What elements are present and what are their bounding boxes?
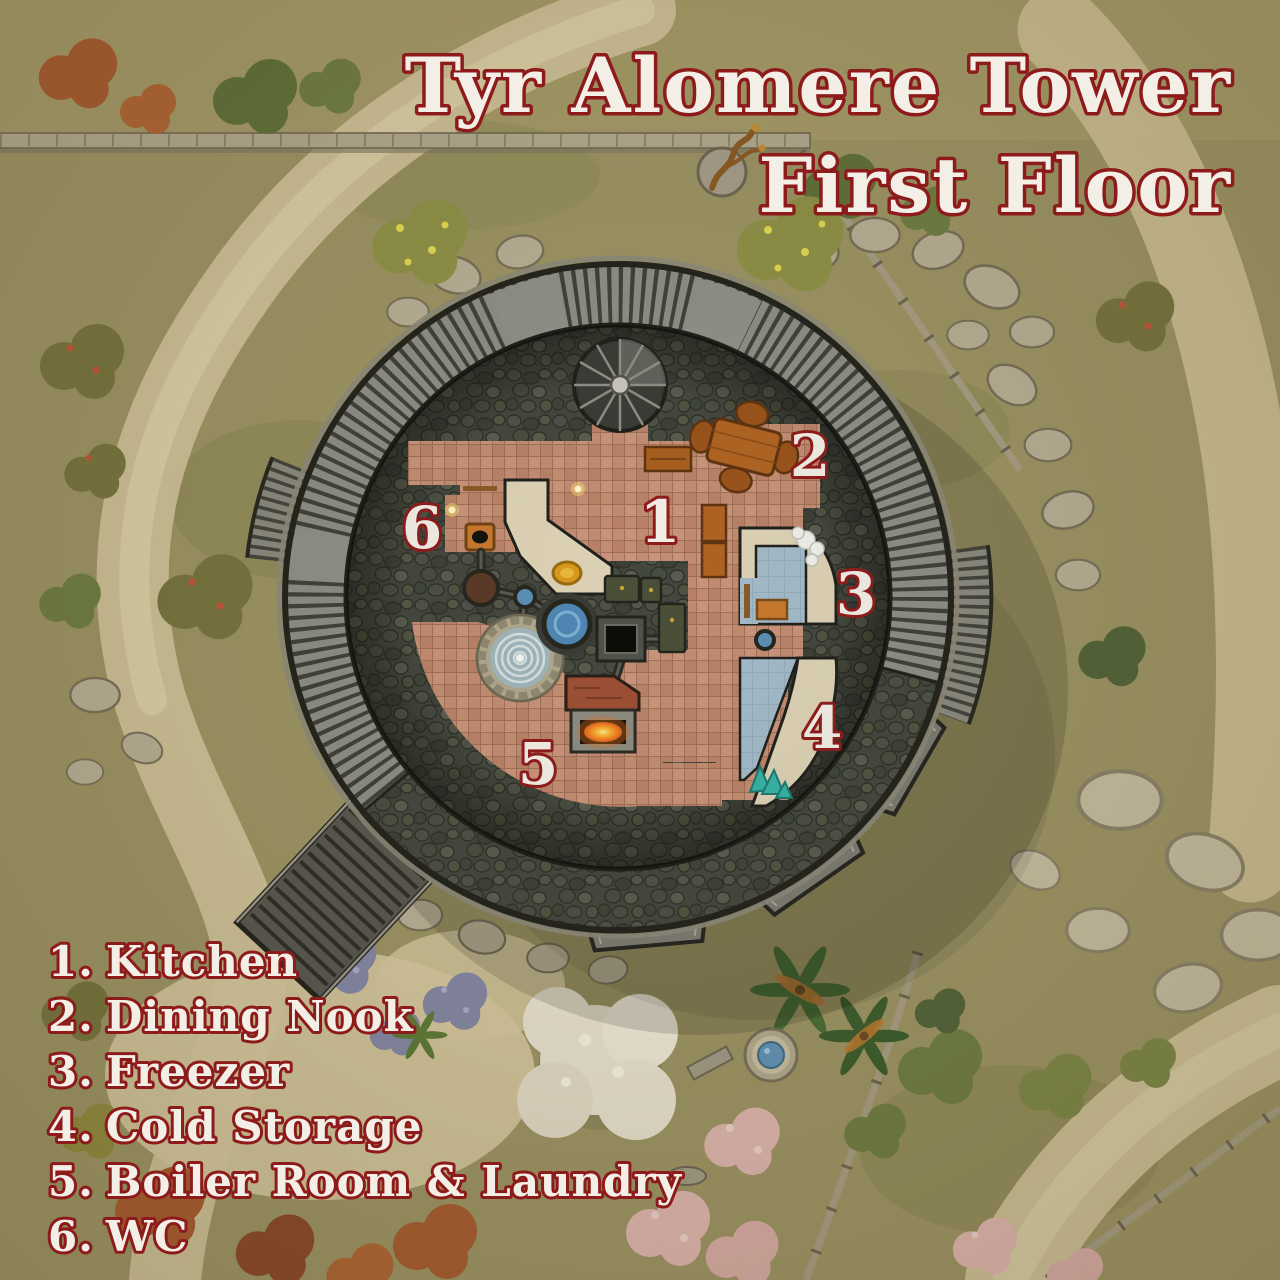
legend-item: 6.WC bbox=[48, 1212, 188, 1261]
map-canvas: 1 2 3 4 5 6 Tyr Alomere Tower First Floo… bbox=[0, 0, 1280, 1280]
legend-item: 5.Boiler Room & Laundry bbox=[48, 1157, 683, 1206]
tower-map: 1 2 3 4 5 6 Tyr Alomere Tower First Floo… bbox=[0, 0, 1280, 1280]
legend-item: 3.Freezer bbox=[48, 1047, 290, 1096]
title-line-1: Tyr Alomere Tower bbox=[405, 41, 1232, 130]
legend-item: 1.Kitchen bbox=[48, 937, 298, 986]
title-line-2: First Floor bbox=[759, 141, 1232, 230]
